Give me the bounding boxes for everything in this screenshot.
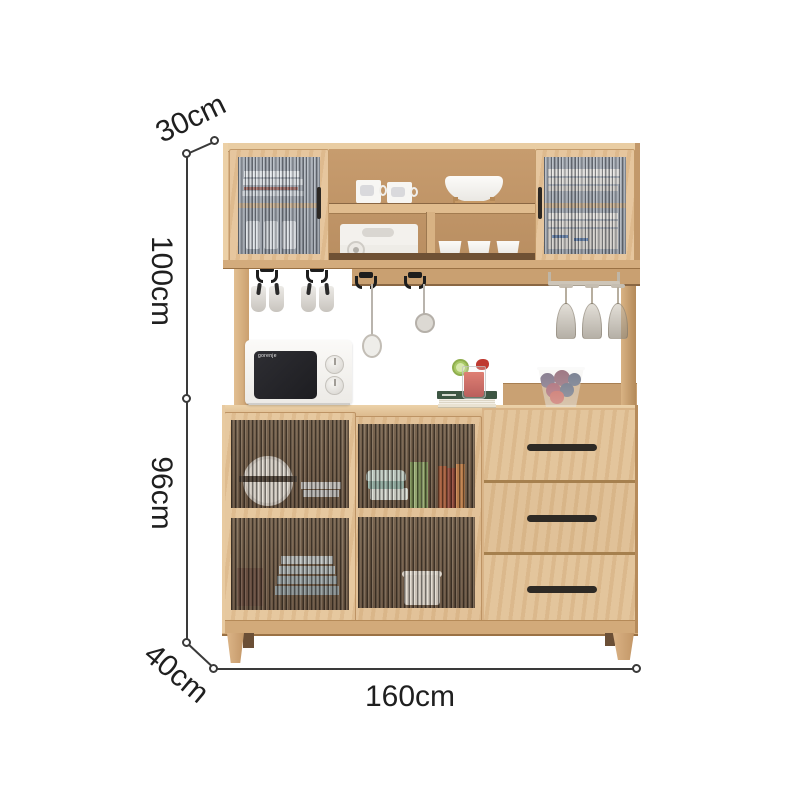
cabinet-shelf — [544, 203, 626, 208]
microwave-shadow — [247, 403, 350, 405]
storage-box-handle — [362, 228, 394, 237]
mug-handle — [379, 185, 387, 196]
plate-stack — [275, 586, 339, 595]
base-bottom-rail — [222, 620, 638, 636]
dimension-label-lower-height: 96cm — [144, 456, 178, 529]
teal-bowl-stack — [368, 480, 404, 489]
door-handle-upper-right — [538, 187, 542, 219]
tin-label — [574, 238, 588, 241]
plate-stack — [548, 186, 618, 191]
microwave-brand: gorenje — [258, 353, 277, 359]
fluted-glass-upper-right — [544, 157, 626, 254]
dimension-endpoint — [182, 149, 191, 158]
plate-stack — [548, 169, 620, 176]
plate-rack-bar — [239, 476, 297, 482]
teal-bowl-stack — [366, 470, 406, 481]
drawer-handle — [527, 515, 597, 522]
hook — [256, 270, 263, 283]
tin-label — [552, 235, 568, 238]
mug-pattern — [391, 187, 405, 197]
dimension-endpoint — [210, 136, 219, 145]
plate-stack — [548, 221, 618, 227]
dimension-endpoint — [209, 664, 218, 673]
mug-handle — [410, 187, 418, 197]
hutch-left-edge — [223, 143, 228, 268]
plate-stack — [281, 556, 333, 564]
hutch-bottom-rail — [223, 260, 640, 269]
fluted-glass-left-lower — [231, 518, 349, 610]
dimension-endpoint — [632, 664, 641, 673]
leg-back-left — [243, 633, 254, 648]
hook — [355, 276, 362, 289]
plate-stack — [548, 178, 620, 184]
wine-glass — [556, 303, 576, 339]
hook — [306, 270, 313, 283]
skimmer — [423, 284, 425, 314]
bowl-stack — [301, 482, 341, 489]
whisk — [371, 284, 373, 336]
white-pot — [402, 571, 442, 577]
wine-glass — [617, 287, 619, 304]
cocktail-glass — [462, 366, 486, 399]
plate-stack — [548, 213, 618, 219]
hutch-right-edge — [635, 143, 640, 268]
wine-glass — [582, 303, 602, 339]
dark-stack — [237, 568, 263, 606]
dimension-line-width — [214, 668, 637, 670]
cup-strap — [274, 283, 279, 295]
fluted-glass-right-upper — [358, 424, 475, 508]
glass-cup — [246, 221, 260, 249]
plate-stack — [279, 566, 335, 574]
cup-strap — [324, 283, 329, 295]
dimension-endpoint — [182, 394, 191, 403]
glass-cup — [264, 221, 278, 249]
microwave-dial — [325, 355, 344, 374]
fluted-glass-left-upper — [231, 420, 349, 508]
cabinet-shelf — [238, 203, 320, 208]
hook — [271, 270, 278, 283]
book-under — [438, 404, 496, 408]
book-title-mark — [442, 394, 456, 396]
base-right-edge — [635, 405, 638, 633]
plate-stack — [244, 187, 298, 190]
bowl-stack — [303, 490, 339, 497]
product-image: 30cm 100cm 96cm 40cm 160cm — [0, 0, 800, 800]
orange-boxes — [456, 464, 465, 508]
dimension-endpoint — [182, 638, 191, 647]
green-cups — [410, 462, 428, 508]
door-handle-upper-left — [317, 187, 321, 219]
wine-glass — [591, 287, 593, 304]
drawer-handle — [527, 444, 597, 451]
fluted-glass-right-lower — [358, 517, 475, 608]
plate-stack — [244, 171, 300, 177]
white-pot — [404, 575, 440, 605]
teal-bowl-stack — [370, 488, 408, 500]
wine-glass — [565, 287, 567, 304]
leg-front-right — [611, 633, 634, 660]
hook — [321, 270, 328, 283]
round-plate — [243, 456, 293, 506]
plate-stack — [242, 191, 304, 196]
mug-pattern — [360, 185, 374, 196]
dimension-label-top-depth: 30cm — [151, 88, 232, 151]
whisk — [362, 334, 382, 358]
fruit-bowl-rim — [537, 367, 585, 370]
storage-tins — [548, 229, 618, 249]
orange-boxes — [447, 468, 456, 508]
leg-front-left — [227, 633, 244, 663]
plate-stack — [243, 179, 303, 185]
base-left-edge — [222, 405, 225, 633]
dimension-label-upper-height: 100cm — [144, 236, 178, 326]
hook — [404, 276, 411, 289]
orange-boxes — [438, 466, 447, 508]
dimension-label-base-depth: 40cm — [137, 637, 215, 710]
glass-cup — [282, 221, 296, 249]
dimension-label-width: 160cm — [365, 680, 455, 714]
microwave-dial — [325, 376, 344, 395]
fluted-glass-upper-left — [238, 157, 320, 254]
plate-stack — [277, 576, 337, 584]
skimmer — [415, 313, 435, 333]
drawer-handle — [527, 586, 597, 593]
